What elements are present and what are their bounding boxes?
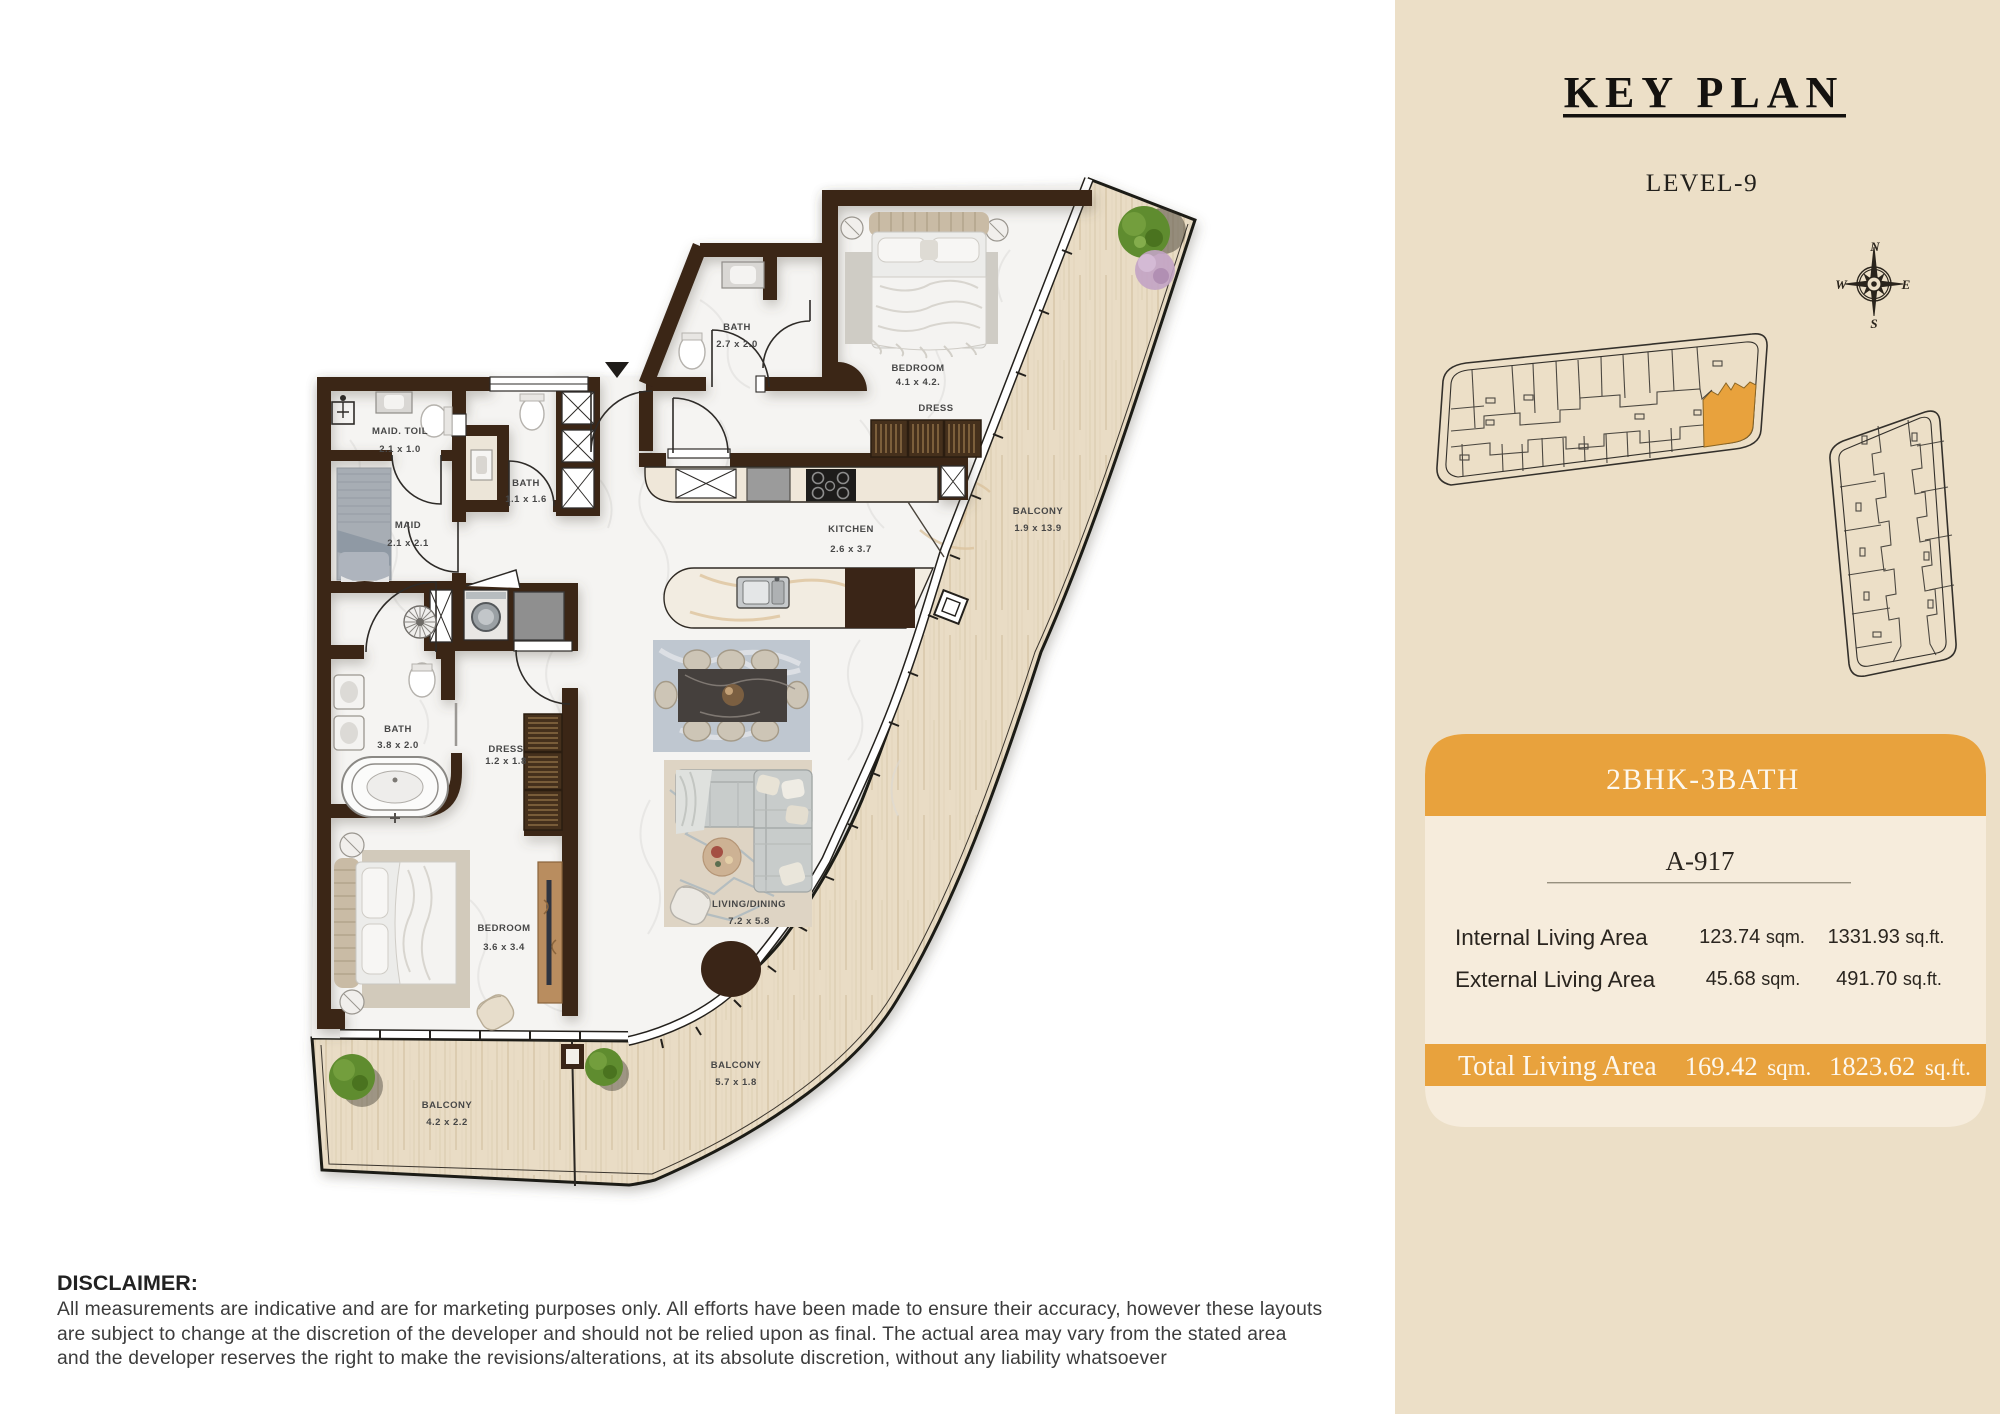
svg-text:BALCONY: BALCONY <box>422 1100 473 1111</box>
svg-text:All measurements are indicativ: All measurements are indicative and are … <box>57 1299 1322 1320</box>
svg-text:N: N <box>1869 239 1880 254</box>
svg-text:are subject to change at the d: are subject to change at the discretion … <box>57 1324 1287 1345</box>
svg-text:BATH: BATH <box>512 478 540 489</box>
svg-text:169.42 sqm.: 169.42 sqm. <box>1685 1051 1812 1081</box>
svg-text:BALCONY: BALCONY <box>711 1060 762 1071</box>
svg-text:BATH: BATH <box>384 724 412 735</box>
svg-text:BALCONY: BALCONY <box>1013 506 1064 517</box>
svg-text:DRESS: DRESS <box>918 403 953 414</box>
svg-text:5.7 x 1.8: 5.7 x 1.8 <box>715 1077 756 1088</box>
svg-text:2.6 x 3.7: 2.6 x 3.7 <box>830 544 871 555</box>
svg-text:1.1 x 1.6: 1.1 x 1.6 <box>505 494 546 505</box>
svg-text:1823.62 sq.ft.: 1823.62 sq.ft. <box>1829 1051 1971 1081</box>
svg-text:MAID. TOIL: MAID. TOIL <box>372 426 428 437</box>
svg-text:LIVING/DINING: LIVING/DINING <box>712 899 786 910</box>
svg-text:Internal Living Area: Internal Living Area <box>1455 925 1648 950</box>
svg-text:LEVEL-9: LEVEL-9 <box>1646 168 1758 197</box>
svg-text:2.7 x 2.0: 2.7 x 2.0 <box>716 339 757 350</box>
svg-text:DISCLAIMER:: DISCLAIMER: <box>57 1271 198 1295</box>
svg-text:7.2 x 5.8: 7.2 x 5.8 <box>728 916 769 927</box>
svg-text:123.74 sqm.: 123.74 sqm. <box>1699 926 1805 948</box>
svg-text:External Living Area: External Living Area <box>1455 967 1656 992</box>
svg-text:4.1 x 4.2.: 4.1 x 4.2. <box>896 377 941 388</box>
svg-text:and the developer reserves the: and the developer reserves the right to … <box>57 1348 1167 1369</box>
svg-text:Total Living Area: Total Living Area <box>1458 1051 1657 1082</box>
svg-text:E: E <box>1901 277 1911 292</box>
svg-text:KEY PLAN: KEY PLAN <box>1564 68 1845 117</box>
svg-text:1.2 x 1.8: 1.2 x 1.8 <box>485 756 526 767</box>
svg-text:1331.93 sq.ft.: 1331.93 sq.ft. <box>1828 926 1945 948</box>
svg-text:2BHK-3BATH: 2BHK-3BATH <box>1606 764 1800 796</box>
svg-text:S: S <box>1870 316 1877 331</box>
svg-text:A-917: A-917 <box>1666 846 1735 876</box>
svg-text:1.9 x 13.9: 1.9 x 13.9 <box>1014 523 1061 534</box>
svg-text:4.2 x 2.2: 4.2 x 2.2 <box>426 1117 467 1128</box>
svg-text:BEDROOM: BEDROOM <box>477 923 530 934</box>
svg-text:491.70 sq.ft.: 491.70 sq.ft. <box>1836 968 1942 990</box>
svg-text:2.1 x 1.0: 2.1 x 1.0 <box>379 444 420 455</box>
svg-text:3.8 x 2.0: 3.8 x 2.0 <box>377 740 418 751</box>
svg-text:BATH: BATH <box>723 322 751 333</box>
svg-text:BEDROOM: BEDROOM <box>891 363 944 374</box>
svg-text:45.68 sqm.: 45.68 sqm. <box>1706 968 1801 990</box>
svg-text:3.6 x 3.4: 3.6 x 3.4 <box>483 942 525 953</box>
svg-text:KITCHEN: KITCHEN <box>828 524 874 535</box>
svg-text:MAID: MAID <box>395 520 421 531</box>
svg-text:W: W <box>1835 277 1848 292</box>
svg-text:2.1 x 2.1: 2.1 x 2.1 <box>387 538 429 549</box>
svg-text:DRESS: DRESS <box>488 744 523 755</box>
